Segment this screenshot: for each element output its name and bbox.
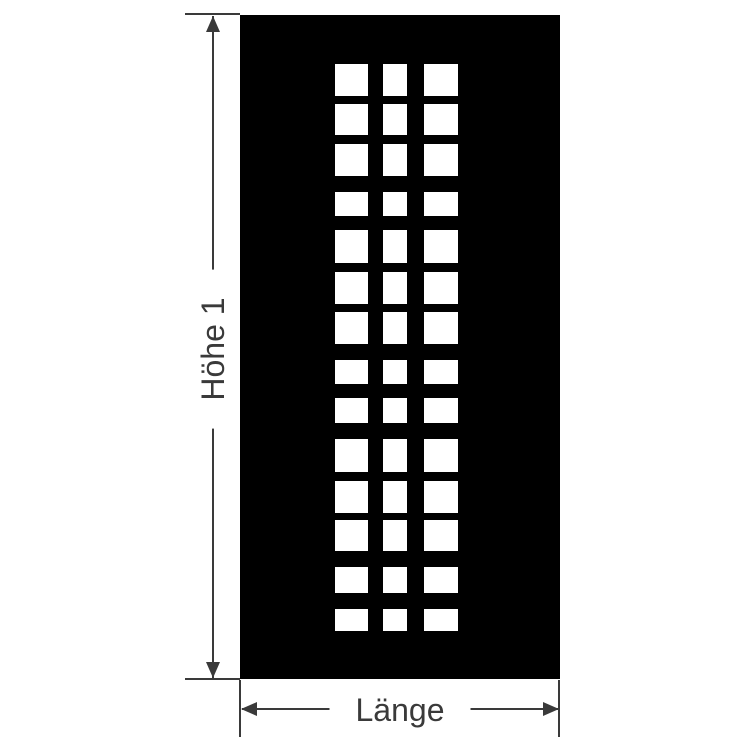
cutout-square [383,64,407,96]
arrow-down-icon [206,662,220,678]
panel [240,15,560,679]
cutout-square [335,312,368,344]
cutout-square [424,360,458,384]
cutout-square [383,144,407,176]
cutout-square [424,520,458,551]
cutout-square [424,272,458,304]
length-dimension-label: Länge [400,710,541,750]
cutout-square [383,398,407,423]
cutout-square [424,64,458,96]
cutout-square [424,104,458,135]
cutout-square [383,312,407,344]
cutout-square [424,230,458,263]
cutout-square [424,144,458,176]
cutout-square [335,481,368,513]
cutout-square [335,144,368,176]
cutout-square [424,609,458,631]
height-dimension-label: Höhe 1 [213,349,372,389]
cutout-square [424,439,458,472]
cutout-square [335,272,368,304]
cutout-square [335,230,368,263]
cutout-square [335,398,368,423]
cutout-square [335,567,368,593]
cutout-square [424,567,458,593]
cutout-square [424,398,458,423]
cutout-square [424,481,458,513]
height-dimension-label-text: Höhe 1 [193,269,233,428]
cutout-square [424,192,458,216]
arrow-left-icon [241,702,257,716]
arrow-up-icon [206,16,220,32]
cutout-square [424,312,458,344]
cutout-square [383,272,407,304]
cutout-square [383,360,407,384]
dimension-drawing: Höhe 1 Länge [0,0,750,750]
cutout-square [335,609,368,631]
cutout-square [383,481,407,513]
cutout-square [383,609,407,631]
cutout-square [383,520,407,551]
cutout-square [335,104,368,135]
cutout-square [335,64,368,96]
cutout-square [335,439,368,472]
length-dimension-label-text: Länge [330,690,471,730]
cutout-square [335,192,368,216]
arrow-right-icon [543,702,559,716]
cutout-square [383,104,407,135]
cutout-square [335,520,368,551]
height-extension-line-top [185,13,240,15]
cutout-square [383,439,407,472]
cutout-square [383,230,407,263]
cutout-square [383,192,407,216]
height-extension-line-bottom [185,678,240,680]
cutout-square [383,567,407,593]
